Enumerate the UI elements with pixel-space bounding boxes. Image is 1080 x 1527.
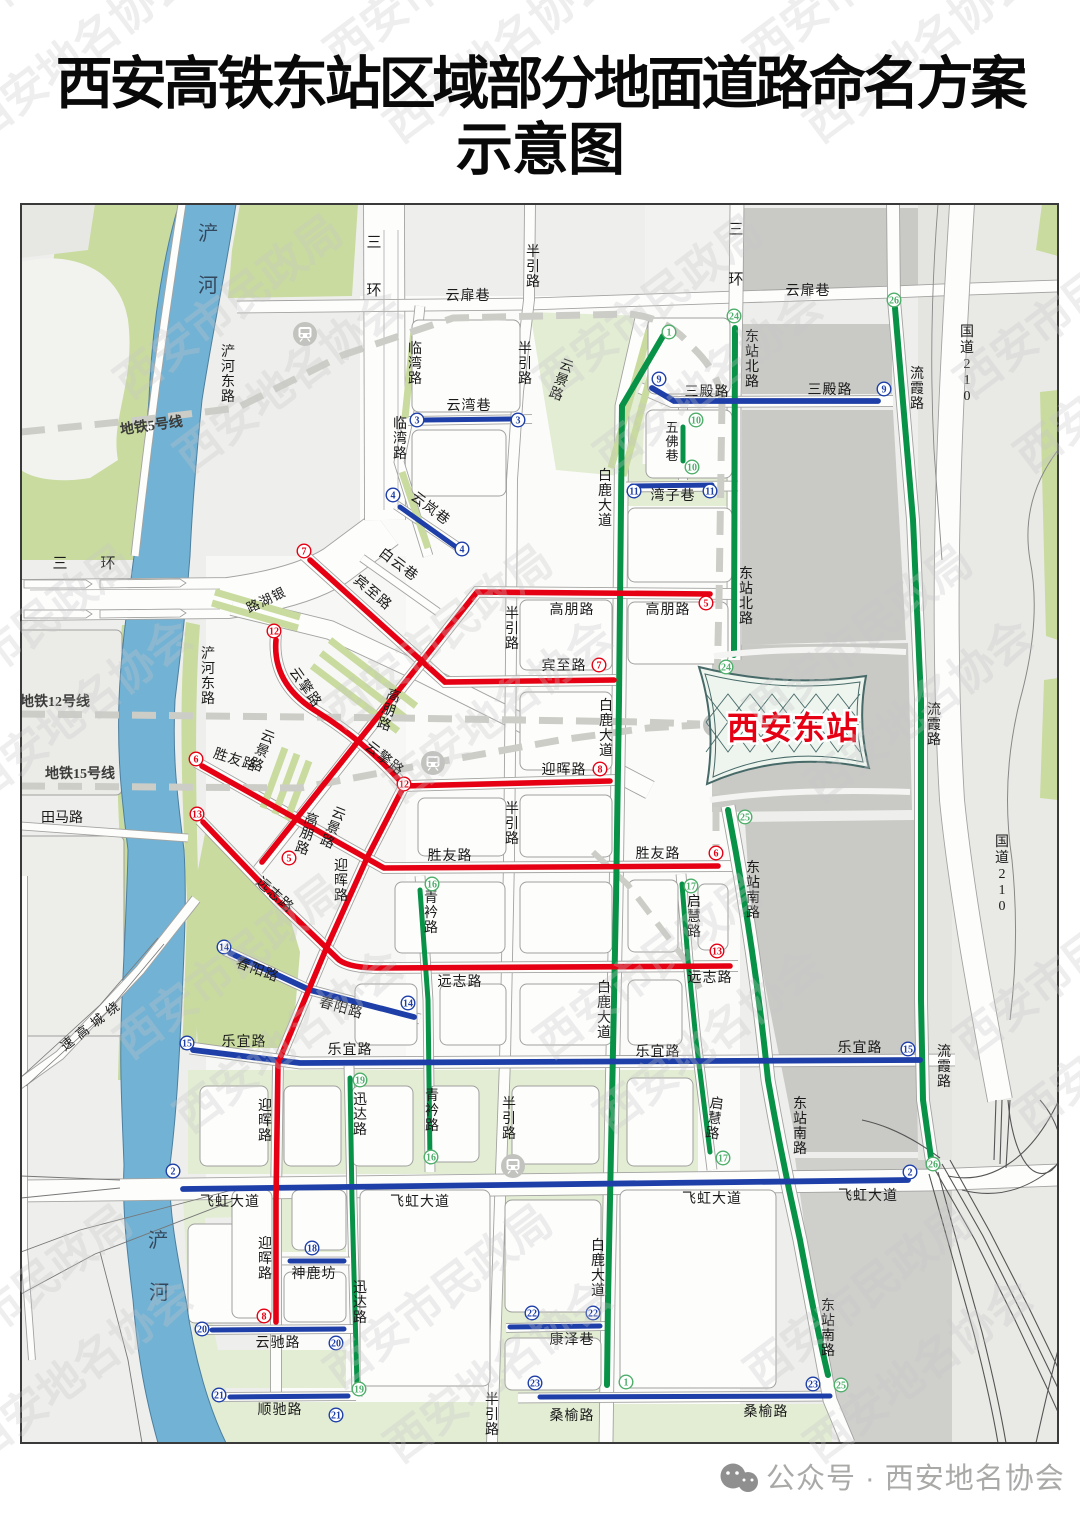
svg-text:半引路: 半引路 — [502, 1096, 516, 1142]
svg-text:胜友路: 胜友路 — [428, 848, 473, 864]
svg-text:21: 21 — [331, 1411, 341, 1422]
svg-text:11: 11 — [705, 487, 714, 498]
svg-text:田马路: 田马路 — [41, 810, 83, 826]
svg-text:2: 2 — [171, 1167, 176, 1178]
svg-text:远志路: 远志路 — [688, 970, 733, 986]
svg-text:12: 12 — [269, 627, 279, 638]
svg-text:飞虹大道: 飞虹大道 — [390, 1194, 450, 1210]
svg-text:飞虹大道: 飞虹大道 — [838, 1188, 898, 1204]
svg-text:5: 5 — [287, 854, 292, 865]
svg-text:半引路: 半引路 — [505, 801, 519, 847]
svg-text:三殿路: 三殿路 — [808, 382, 853, 398]
svg-text:2: 2 — [908, 1168, 913, 1179]
svg-text:云湾巷: 云湾巷 — [447, 397, 492, 414]
svg-text:流霞路: 流霞路 — [910, 366, 924, 412]
svg-text:6: 6 — [194, 755, 199, 766]
svg-text:顺驰路: 顺驰路 — [258, 1402, 303, 1418]
svg-text:15: 15 — [182, 1039, 192, 1050]
svg-text:桑榆路: 桑榆路 — [744, 1404, 789, 1420]
svg-text:乐宜路: 乐宜路 — [328, 1042, 373, 1058]
svg-text:半引路: 半引路 — [526, 244, 540, 290]
svg-text:24: 24 — [721, 663, 731, 674]
svg-text:8: 8 — [598, 765, 603, 776]
svg-text:白鹿大道: 白鹿大道 — [599, 698, 613, 759]
svg-text:地铁15号线: 地铁15号线 — [45, 765, 115, 782]
svg-text:10: 10 — [687, 463, 697, 474]
svg-text:高朋路: 高朋路 — [646, 601, 691, 618]
svg-text:17: 17 — [686, 882, 696, 893]
svg-text:迎晖路: 迎晖路 — [542, 762, 587, 778]
svg-text:5: 5 — [704, 599, 709, 610]
svg-text:18: 18 — [307, 1244, 317, 1255]
svg-text:26: 26 — [928, 1160, 938, 1171]
svg-text:23: 23 — [530, 1379, 540, 1390]
svg-text:东站北路: 东站北路 — [739, 566, 753, 627]
svg-text:8: 8 — [262, 1312, 267, 1323]
svg-text:胜友路: 胜友路 — [636, 846, 681, 862]
svg-text:迎晖路: 迎晖路 — [258, 1236, 272, 1282]
svg-text:湾子巷: 湾子巷 — [651, 487, 696, 504]
svg-text:6: 6 — [714, 849, 719, 860]
svg-text:乐宜路: 乐宜路 — [838, 1040, 883, 1056]
svg-text:23: 23 — [808, 1380, 818, 1391]
svg-text:11: 11 — [629, 487, 638, 498]
svg-text:3: 3 — [516, 416, 521, 427]
svg-text:20: 20 — [197, 1325, 207, 1336]
svg-text:西安高铁东站区域部分地面道路命名方案: 西安高铁东站区域部分地面道路命名方案 — [56, 52, 1029, 116]
svg-text:浐: 浐 — [198, 222, 218, 245]
svg-text:远志路: 远志路 — [438, 974, 483, 990]
svg-text:4: 4 — [460, 545, 465, 556]
svg-text:白鹿大道: 白鹿大道 — [598, 468, 612, 529]
svg-text:26: 26 — [889, 296, 899, 307]
svg-text:7: 7 — [302, 547, 307, 558]
svg-text:17: 17 — [718, 1154, 728, 1165]
svg-text:25: 25 — [836, 1381, 846, 1392]
svg-text:9: 9 — [882, 385, 887, 396]
svg-text:迅达路: 迅达路 — [353, 1092, 367, 1138]
svg-text:25: 25 — [740, 813, 750, 824]
svg-text:15: 15 — [903, 1045, 913, 1056]
svg-text:1: 1 — [667, 328, 672, 339]
svg-text:飞虹大道: 飞虹大道 — [682, 1191, 742, 1207]
svg-text:神鹿坊: 神鹿坊 — [292, 1265, 337, 1282]
svg-text:云驰路: 云驰路 — [256, 1335, 301, 1351]
svg-text:公众号 · 西安地名协会: 公众号 · 西安地名协会 — [766, 1462, 1065, 1495]
svg-text:3: 3 — [415, 416, 420, 427]
svg-text:浐: 浐 — [148, 1229, 168, 1252]
svg-text:13: 13 — [192, 810, 202, 821]
svg-text:16: 16 — [426, 1153, 436, 1164]
svg-text:迎晖路: 迎晖路 — [258, 1098, 272, 1144]
svg-text:飞虹大道: 飞虹大道 — [200, 1194, 260, 1210]
svg-text:流霞路: 流霞路 — [937, 1044, 951, 1090]
svg-text:青衿路: 青衿路 — [424, 890, 438, 936]
svg-text:19: 19 — [355, 1076, 365, 1087]
svg-text:示意图: 示意图 — [456, 118, 624, 182]
svg-text:浐河东路: 浐河东路 — [201, 646, 215, 707]
svg-text:24: 24 — [729, 312, 739, 323]
svg-text:14: 14 — [403, 999, 413, 1010]
svg-text:青衿路: 青衿路 — [425, 1088, 439, 1134]
svg-text:21: 21 — [214, 1391, 224, 1402]
svg-text:1: 1 — [624, 1378, 629, 1389]
svg-text:临湾路: 临湾路 — [393, 416, 407, 462]
svg-text:4: 4 — [391, 491, 396, 502]
svg-text:云扉巷: 云扉巷 — [446, 288, 491, 304]
svg-text:16: 16 — [427, 880, 437, 891]
svg-text:临湾路: 临湾路 — [408, 341, 422, 387]
svg-text:桑榆路: 桑榆路 — [550, 1408, 595, 1424]
svg-text:东站南路: 东站南路 — [793, 1096, 807, 1157]
